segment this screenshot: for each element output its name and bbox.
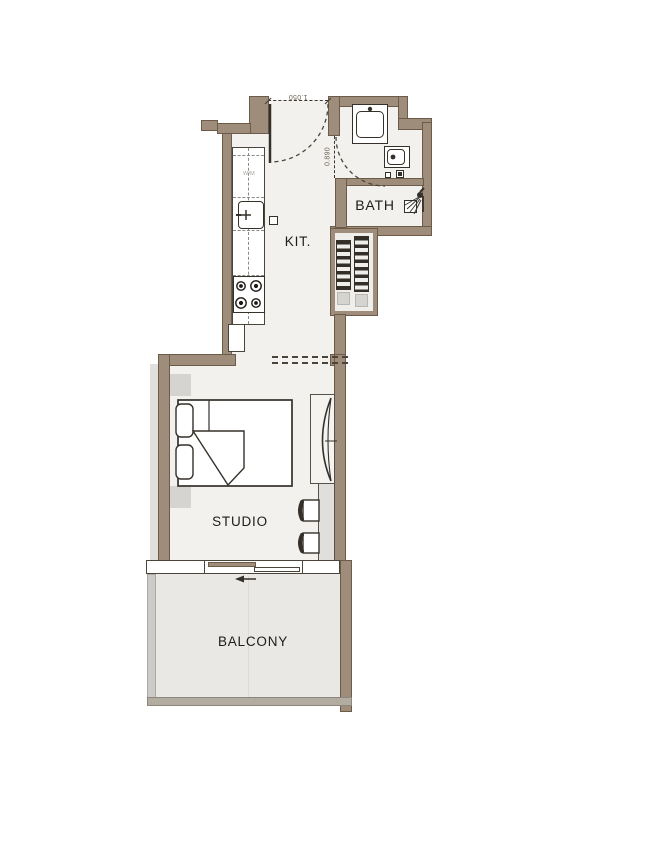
bath-label: BATH	[349, 197, 401, 214]
window-frame-right	[302, 560, 340, 574]
washer-label: W/M	[236, 170, 262, 178]
wall-top-left-corner	[249, 96, 269, 134]
shaft-gray-box	[355, 294, 368, 307]
shower-mixer-box	[404, 200, 417, 213]
bulkhead-line	[272, 362, 348, 364]
kitchen-label: KIT.	[275, 234, 321, 250]
balcony-label: BALCONY	[213, 633, 293, 650]
entry-dimension: 1.050	[276, 92, 320, 101]
wall-switch-box	[269, 216, 278, 225]
bath-door-opening-line	[334, 136, 335, 178]
ac-shaft-hatch	[354, 236, 369, 292]
toilet-bowl	[387, 149, 405, 165]
wall-kitchen-bath-divider	[328, 96, 340, 136]
wall-studio-top-left	[160, 354, 236, 366]
washbasin-bowl	[356, 111, 384, 138]
wall-shadow	[150, 364, 158, 564]
wall-bath-left-lower	[335, 178, 347, 228]
stove-burners-icon	[233, 276, 265, 313]
floor-plan: W/M	[0, 0, 660, 859]
kitchen-sink-icon	[238, 201, 264, 229]
shaft-gray-box	[337, 292, 350, 305]
bath-accessory	[385, 172, 391, 178]
window-frame-left	[146, 560, 206, 574]
ac-shaft-hatch	[336, 240, 351, 290]
sliding-door-panel	[208, 562, 256, 567]
entry-floor	[268, 100, 330, 136]
wall-balcony-right	[340, 560, 352, 712]
bath-accessory	[396, 170, 404, 178]
counter-end-unit	[228, 324, 245, 352]
nightstand	[170, 374, 191, 396]
balcony-rail-bottom	[147, 697, 352, 706]
studio-label: STUDIO	[209, 513, 271, 530]
balcony-rail-left	[147, 574, 156, 704]
wardrobe-icon	[310, 394, 335, 484]
wall-stub	[201, 120, 218, 131]
bulkhead-line	[272, 356, 348, 358]
bath-door-dimension: 0.890	[324, 142, 333, 172]
wall-bath-partition	[340, 178, 424, 186]
nightstand	[170, 486, 191, 508]
wall-studio-right	[334, 354, 346, 568]
wall-studio-left	[158, 354, 170, 568]
sliding-door-panel	[254, 567, 300, 572]
table-counter	[318, 483, 335, 568]
